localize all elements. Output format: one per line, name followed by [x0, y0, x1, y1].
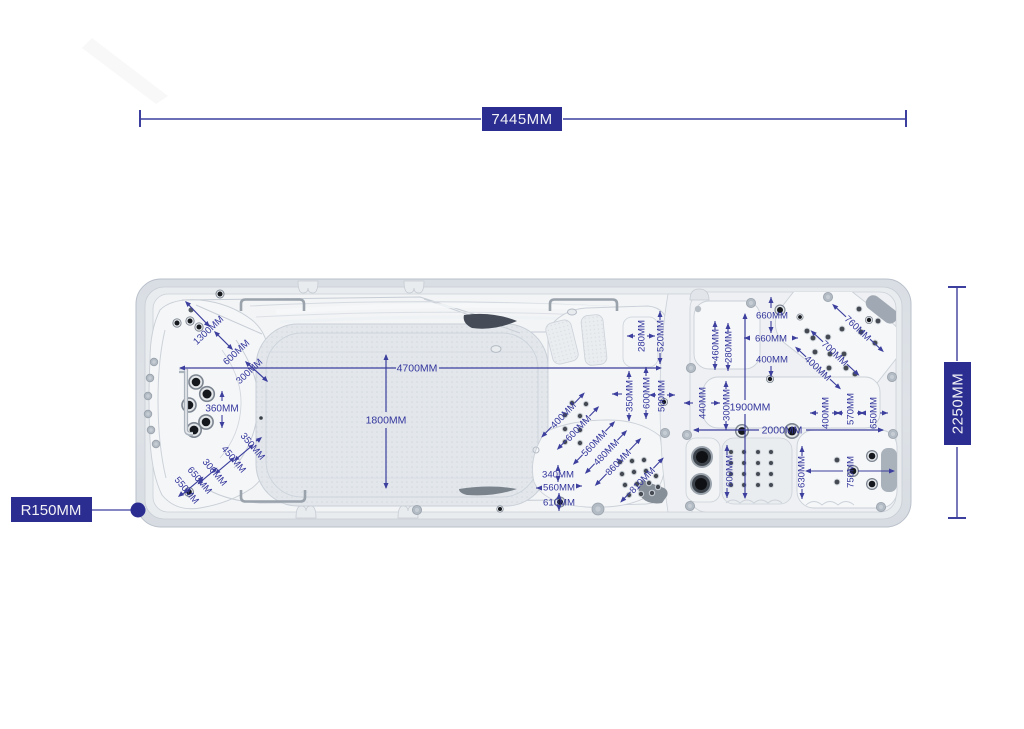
svg-text:560MM: 560MM — [543, 483, 575, 494]
svg-text:570MM: 570MM — [846, 393, 857, 425]
svg-text:440MM: 440MM — [698, 387, 709, 419]
svg-text:500MM: 500MM — [657, 380, 668, 412]
svg-text:660MM: 660MM — [756, 311, 788, 322]
svg-text:350MM: 350MM — [625, 380, 636, 412]
svg-text:1900MM: 1900MM — [730, 402, 771, 414]
svg-text:280MM: 280MM — [637, 320, 648, 352]
svg-text:600MM: 600MM — [725, 455, 736, 487]
svg-text:2000MM: 2000MM — [762, 425, 803, 437]
svg-text:360MM: 360MM — [205, 404, 238, 415]
svg-text:400MM: 400MM — [821, 397, 832, 429]
svg-text:600MM: 600MM — [642, 377, 653, 409]
svg-text:750MM: 750MM — [846, 456, 857, 488]
svg-text:630MM: 630MM — [797, 456, 808, 488]
svg-text:400MM: 400MM — [756, 355, 788, 366]
svg-text:7445MM: 7445MM — [491, 111, 552, 128]
svg-text:280MM: 280MM — [724, 331, 735, 363]
svg-text:650MM: 650MM — [869, 397, 880, 429]
svg-text:520MM: 520MM — [656, 320, 667, 352]
svg-text:460MM: 460MM — [711, 329, 722, 361]
svg-text:660MM: 660MM — [755, 334, 787, 345]
svg-text:1800MM: 1800MM — [366, 415, 407, 427]
svg-text:R150MM: R150MM — [21, 502, 82, 519]
svg-text:300MM: 300MM — [722, 389, 733, 421]
svg-text:4700MM: 4700MM — [397, 363, 438, 375]
svg-text:2250MM: 2250MM — [950, 373, 967, 434]
